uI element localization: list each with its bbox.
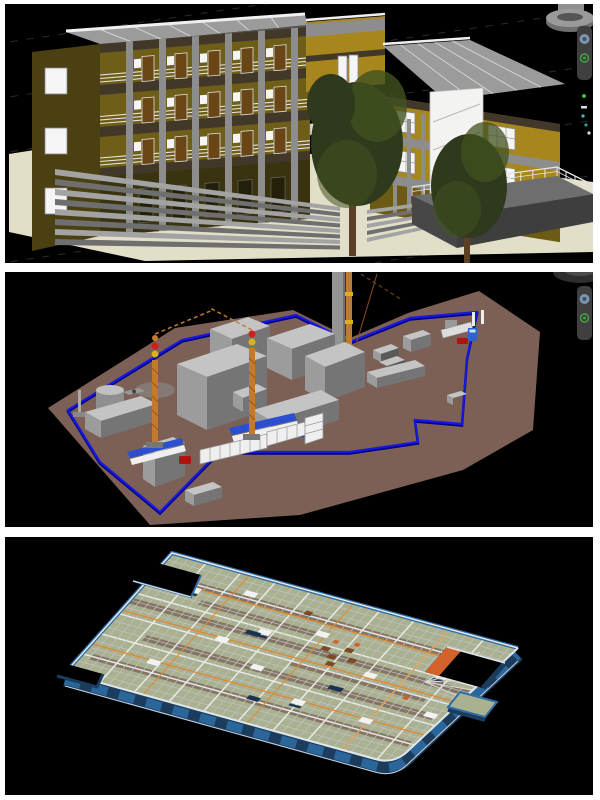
viewport-slab-formwork[interactable] [5,537,593,795]
building-exterior-scene [5,4,593,263]
steering-wheel-icon[interactable] [580,294,590,304]
navigation-bar[interactable] [577,286,592,340]
blue-truck[interactable] [468,328,477,341]
navigation-bar[interactable] [577,26,592,80]
red-car[interactable] [179,456,191,464]
viewport-building-exterior[interactable] [5,4,593,263]
steering-wheel-icon[interactable] [580,34,590,44]
site-layout-scene [5,272,593,527]
slab-formwork-scene [5,537,593,795]
red-car[interactable] [457,338,468,344]
viewport-site-layout[interactable] [5,272,593,527]
